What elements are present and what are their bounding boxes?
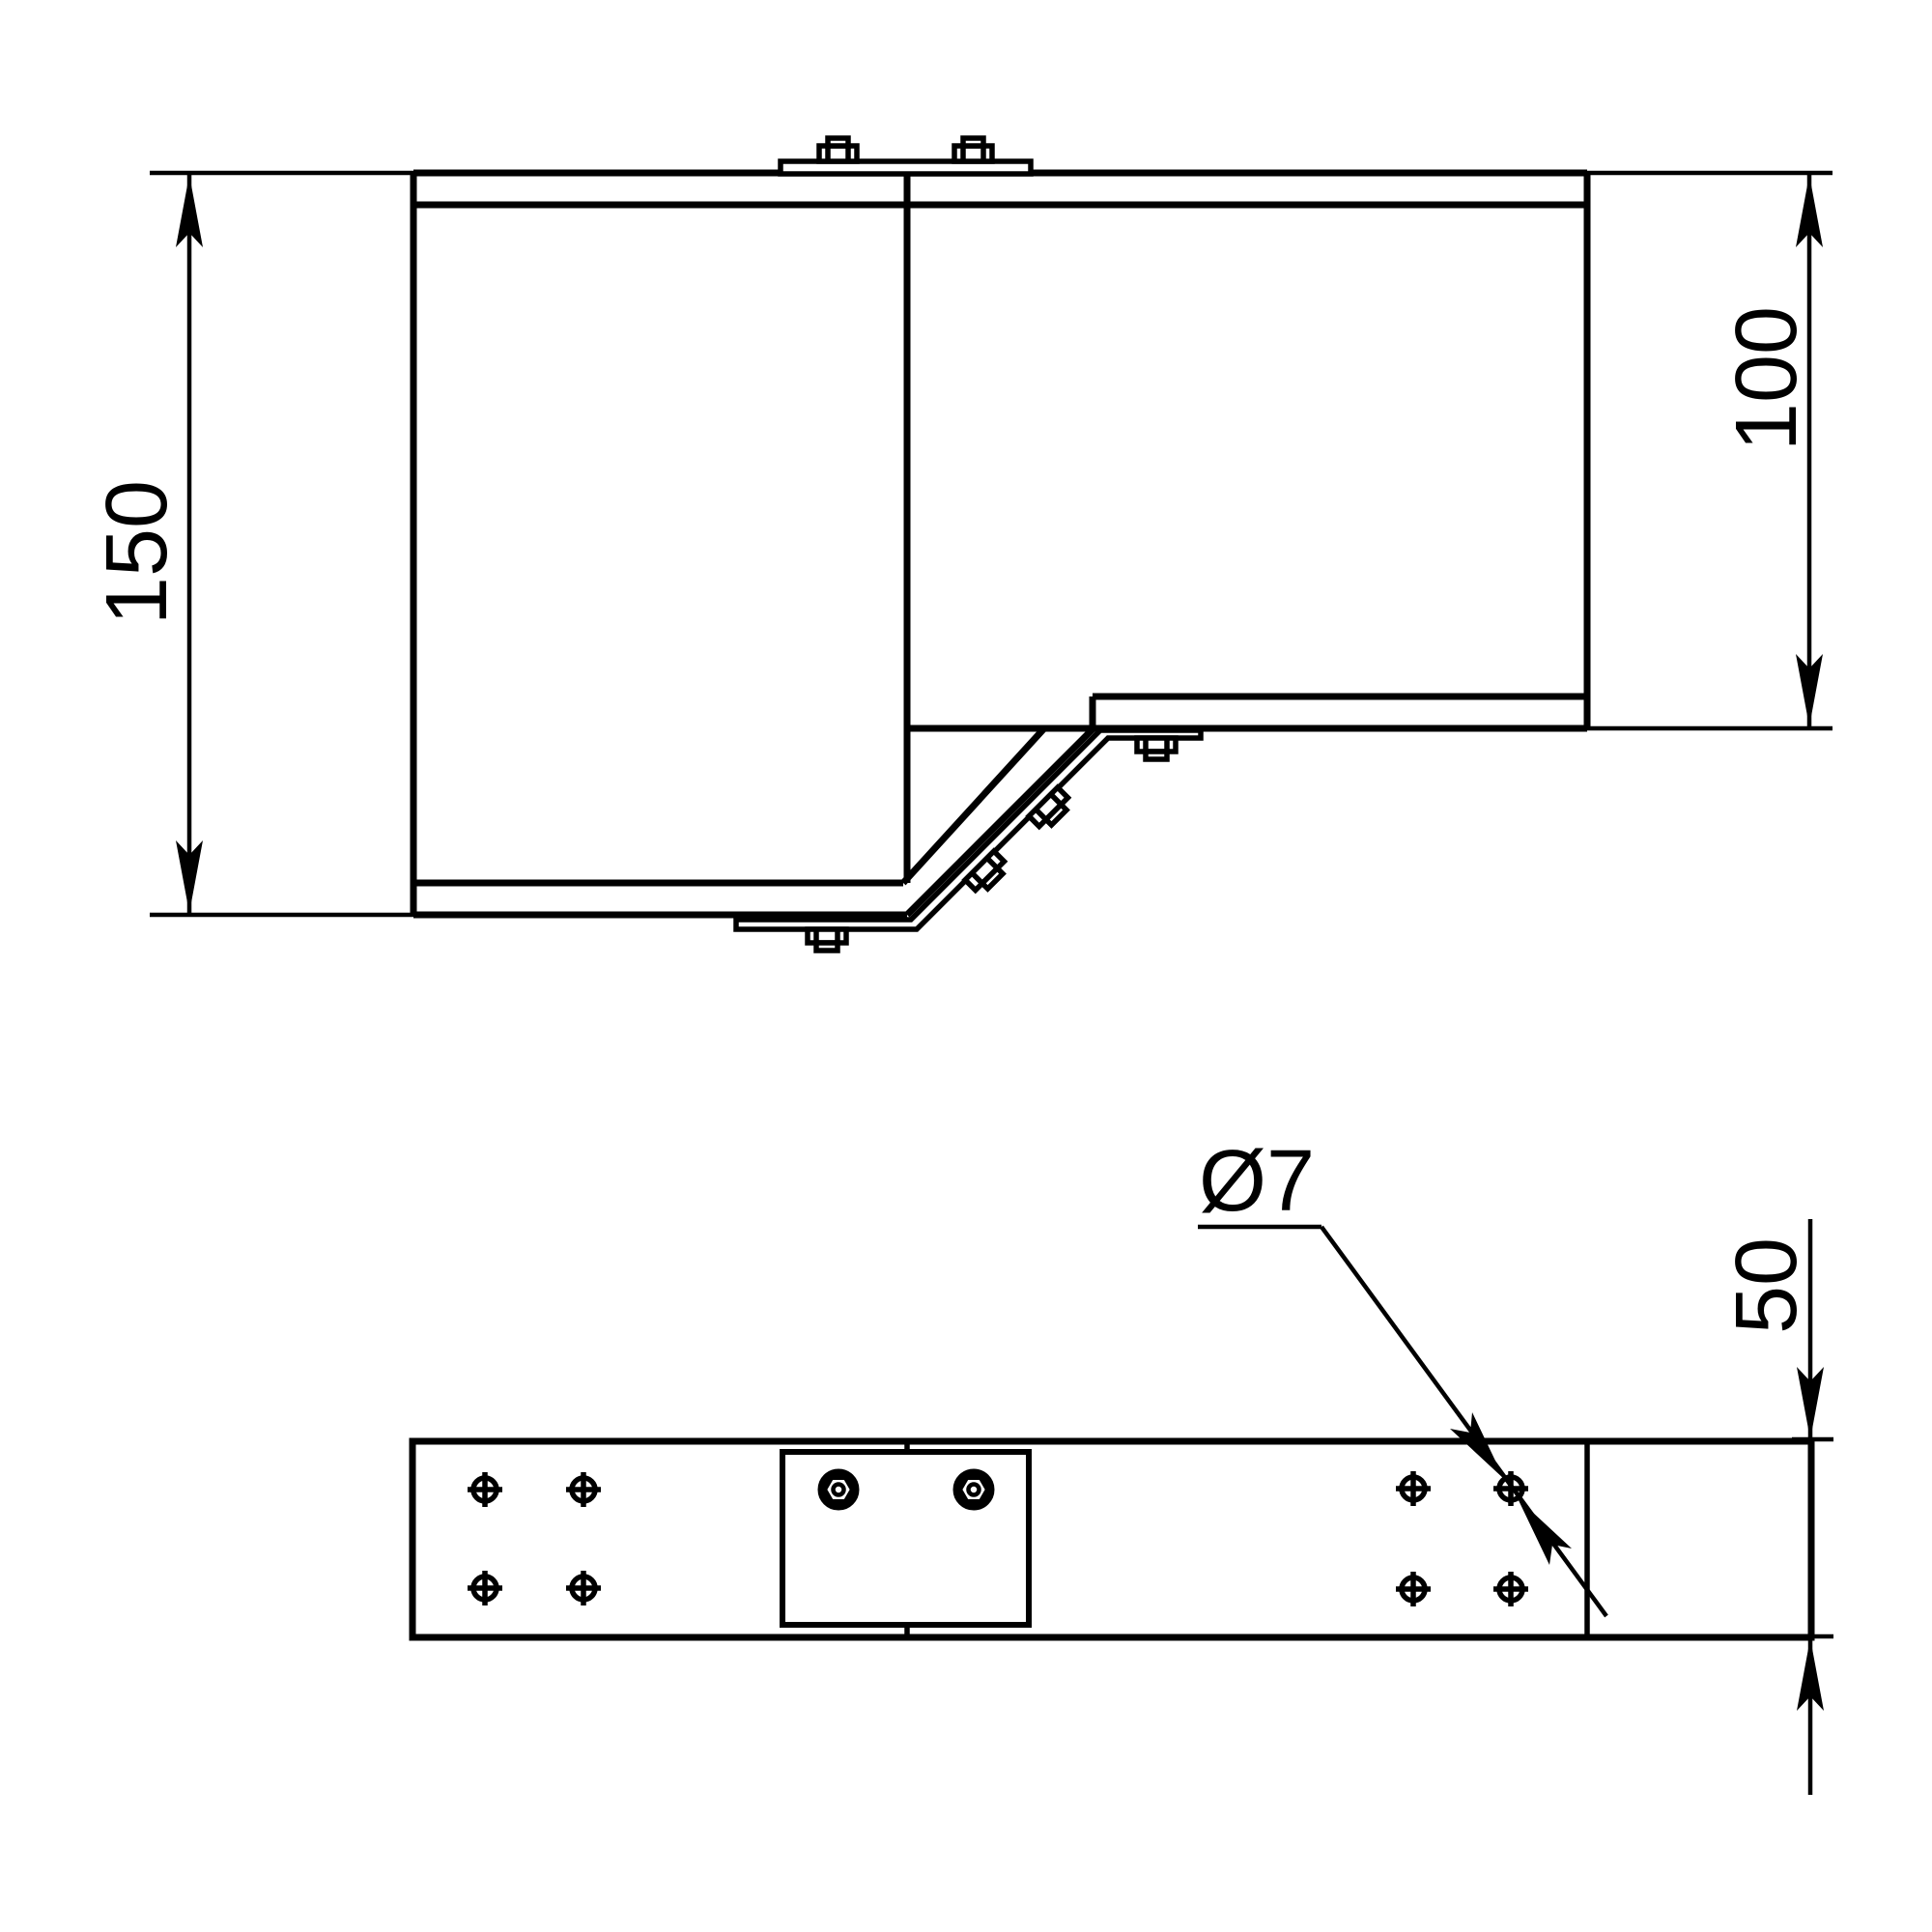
side-view-body-outline: [413, 173, 1587, 915]
hole-callout: Ø7: [1198, 1133, 1606, 1616]
technical-drawing: 150 100: [0, 0, 1932, 1932]
dim-50: 50: [1719, 1219, 1833, 1795]
plan-splice-plate: [782, 1452, 1029, 1625]
top-bolt-left: [819, 138, 857, 161]
dim-50-label: 50: [1719, 1237, 1815, 1334]
dim-150-label: 150: [89, 480, 185, 625]
side-view: 150 100: [89, 138, 1833, 951]
arrow-leader-icon: [1450, 1412, 1504, 1479]
bottom-bolt-right: [1137, 738, 1176, 759]
top-bolt-right: [954, 138, 992, 161]
hole-marker: [566, 1472, 601, 1507]
hole-marker: [1493, 1572, 1528, 1606]
hole-callout-label: Ø7: [1199, 1133, 1315, 1230]
dim-100: 100: [1587, 173, 1833, 728]
plan-nut-right: [957, 1473, 991, 1507]
hole-marker: [468, 1472, 502, 1507]
dim-150: 150: [89, 173, 413, 915]
plan-view: 50 Ø7: [412, 1133, 1833, 1795]
plan-nut-left: [822, 1473, 856, 1507]
hole-marker: [1396, 1572, 1431, 1606]
hole-marker: [468, 1571, 502, 1605]
hole-marker: [566, 1571, 601, 1605]
bottom-bolt-left: [808, 929, 846, 951]
bottom-splice-plate: [736, 730, 1201, 929]
hole-marker: [1396, 1471, 1431, 1506]
dim-100-label: 100: [1719, 306, 1815, 451]
